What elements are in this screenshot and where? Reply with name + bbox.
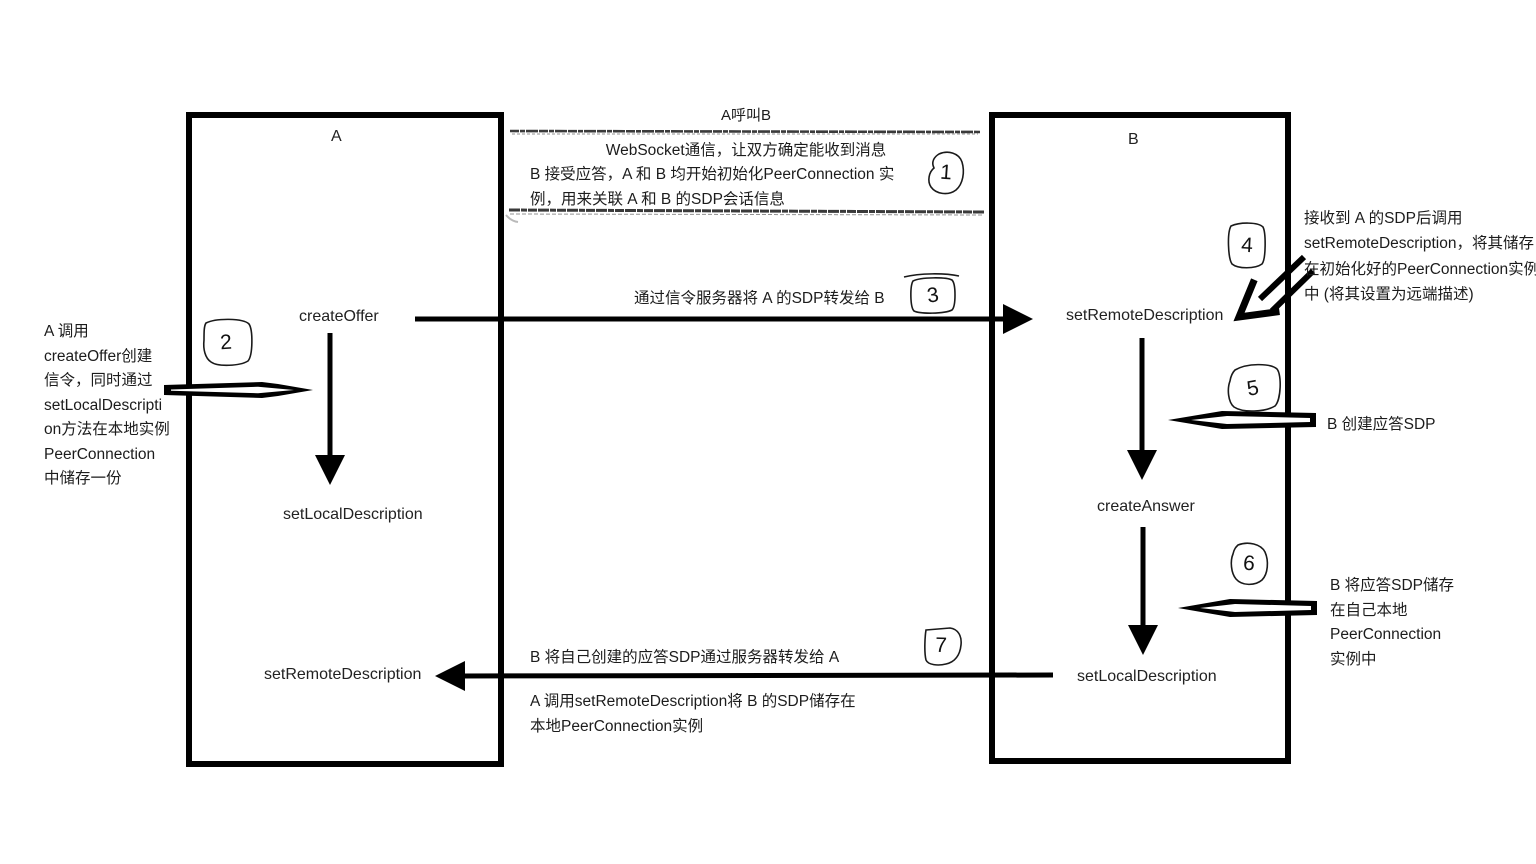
step2-line: createOffer创建 <box>44 345 170 370</box>
arrow-answer-b-to-a <box>462 675 1053 676</box>
step6-line: 实例中 <box>1330 648 1454 673</box>
step7-result-note: A 调用setRemoteDescription将 B 的SDP储存在 本地Pe… <box>530 690 856 739</box>
step4-line: 在初始化好的PeerConnection实例 <box>1304 257 1536 282</box>
webrtc-signaling-diagram: A B createOffer setLocalDescription setR… <box>0 0 1536 864</box>
b-create-answer-label: createAnswer <box>1097 498 1195 516</box>
pen-arrow-step6 <box>1178 599 1317 617</box>
step1-badge: 1 <box>939 161 952 186</box>
step-badge-outlines <box>204 152 1280 665</box>
pen-arrow-step2 <box>164 382 313 398</box>
pen-arrow-step4 <box>1239 257 1313 317</box>
step1-line: WebSocket通信，让双方确定能收到消息 <box>512 139 980 163</box>
step2-line: 信令，同时通过 <box>44 369 170 394</box>
peer-b-label: B <box>1128 131 1139 149</box>
step2-note: A 调用 createOffer创建 信令，同时通过 setLocalDescr… <box>44 320 170 492</box>
step2-line: setLocalDescripti <box>44 394 170 419</box>
a-set-remote-description-label: setRemoteDescription <box>264 666 421 684</box>
step2-line: on方法在本地实例 <box>44 418 170 443</box>
step6-line: 在自己本地 <box>1330 599 1454 624</box>
step1-note: A呼叫B WebSocket通信，让双方确定能收到消息 B 接受应答，A 和 B… <box>512 104 980 212</box>
step7-badge: 7 <box>935 634 948 658</box>
step6-note: B 将应答SDP储存 在自己本地 PeerConnection 实例中 <box>1330 574 1454 672</box>
step5-note: B 创建应答SDP <box>1327 413 1436 438</box>
step6-line: PeerConnection <box>1330 623 1454 648</box>
a-set-local-description-label: setLocalDescription <box>283 506 423 524</box>
diagram-title: A呼叫B <box>512 104 980 125</box>
step4-line: setRemoteDescription，将其储存 <box>1304 231 1536 256</box>
step4-note: 接收到 A 的SDP后调用 setRemoteDescription，将其储存 … <box>1304 206 1536 307</box>
step1-line: B 接受应答，A 和 B 均开始初始化PeerConnection 实 <box>512 163 980 188</box>
badge-3-topbar <box>904 274 959 277</box>
step7-note: B 将自己创建的应答SDP通过服务器转发给 A <box>530 646 839 671</box>
step2-line: PeerConnection <box>44 443 170 468</box>
step6-badge: 6 <box>1242 552 1256 577</box>
step7-result-line: A 调用setRemoteDescription将 B 的SDP储存在 <box>530 690 856 715</box>
pen-arrow-step5 <box>1168 411 1316 429</box>
step2-badge: 2 <box>219 331 232 356</box>
a-create-offer-label: createOffer <box>299 308 379 326</box>
step4-badge: 4 <box>1241 234 1254 259</box>
peer-a-label: A <box>331 128 342 146</box>
step4-line: 中 (将其设置为远端描述) <box>1304 282 1536 307</box>
step3-note: 通过信令服务器将 A 的SDP转发给 B <box>634 287 885 312</box>
step4-line: 接收到 A 的SDP后调用 <box>1304 206 1536 231</box>
b-set-local-description-label: setLocalDescription <box>1077 668 1217 686</box>
step2-line: A 调用 <box>44 320 170 345</box>
b-set-remote-description-label: setRemoteDescription <box>1066 307 1223 325</box>
step7-result-line: 本地PeerConnection实例 <box>530 715 856 740</box>
step2-line: 中储存一份 <box>44 467 170 492</box>
step1-line: 例，用来关联 A 和 B 的SDP会话信息 <box>512 188 980 213</box>
step6-line: B 将应答SDP储存 <box>1330 574 1454 599</box>
